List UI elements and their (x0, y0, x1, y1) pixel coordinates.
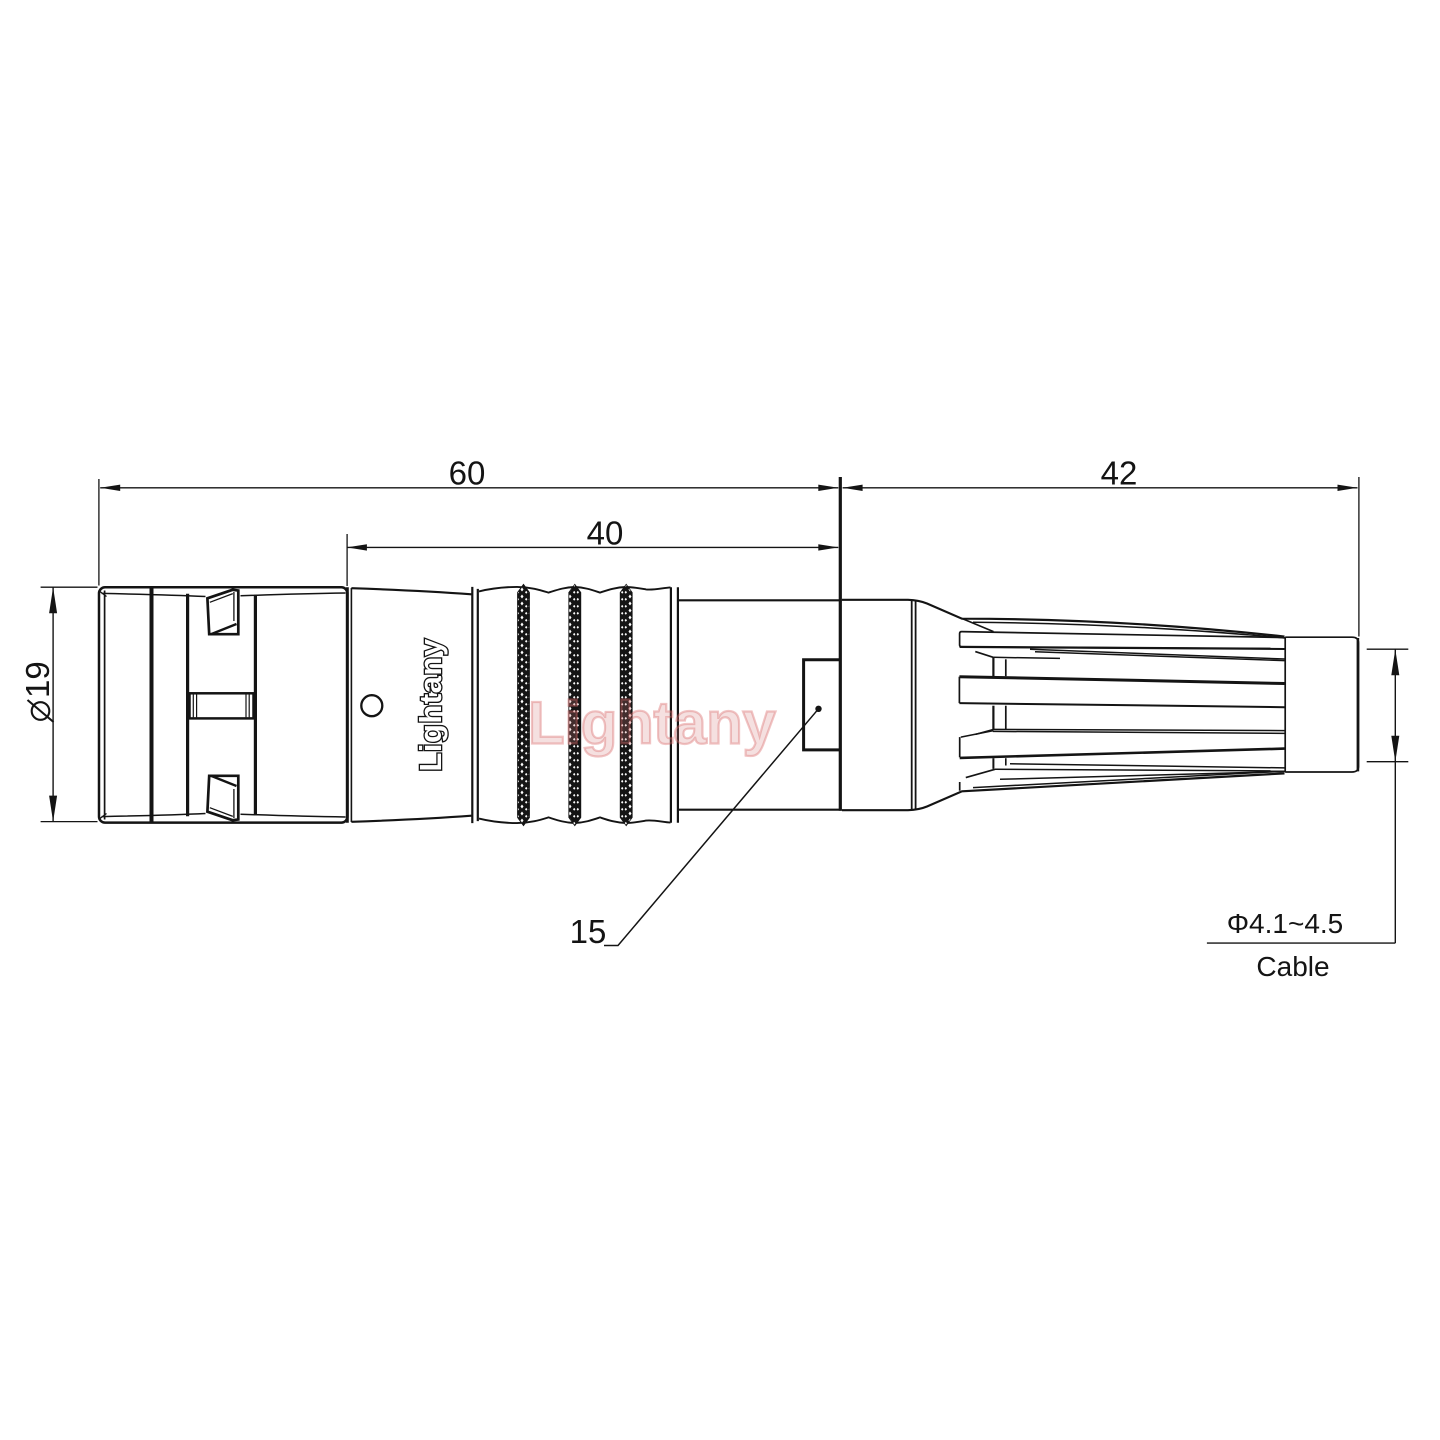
svg-text:Lightany: Lightany (413, 638, 448, 771)
svg-text:Cable: Cable (1256, 951, 1329, 982)
svg-text:42: 42 (1101, 455, 1138, 492)
svg-text:15: 15 (570, 913, 607, 950)
svg-text:19: 19 (19, 661, 56, 698)
svg-text:60: 60 (449, 455, 486, 492)
svg-text:Lightany: Lightany (528, 690, 777, 757)
svg-text:40: 40 (587, 515, 624, 552)
svg-text:Φ4.1~4.5: Φ4.1~4.5 (1227, 908, 1344, 939)
